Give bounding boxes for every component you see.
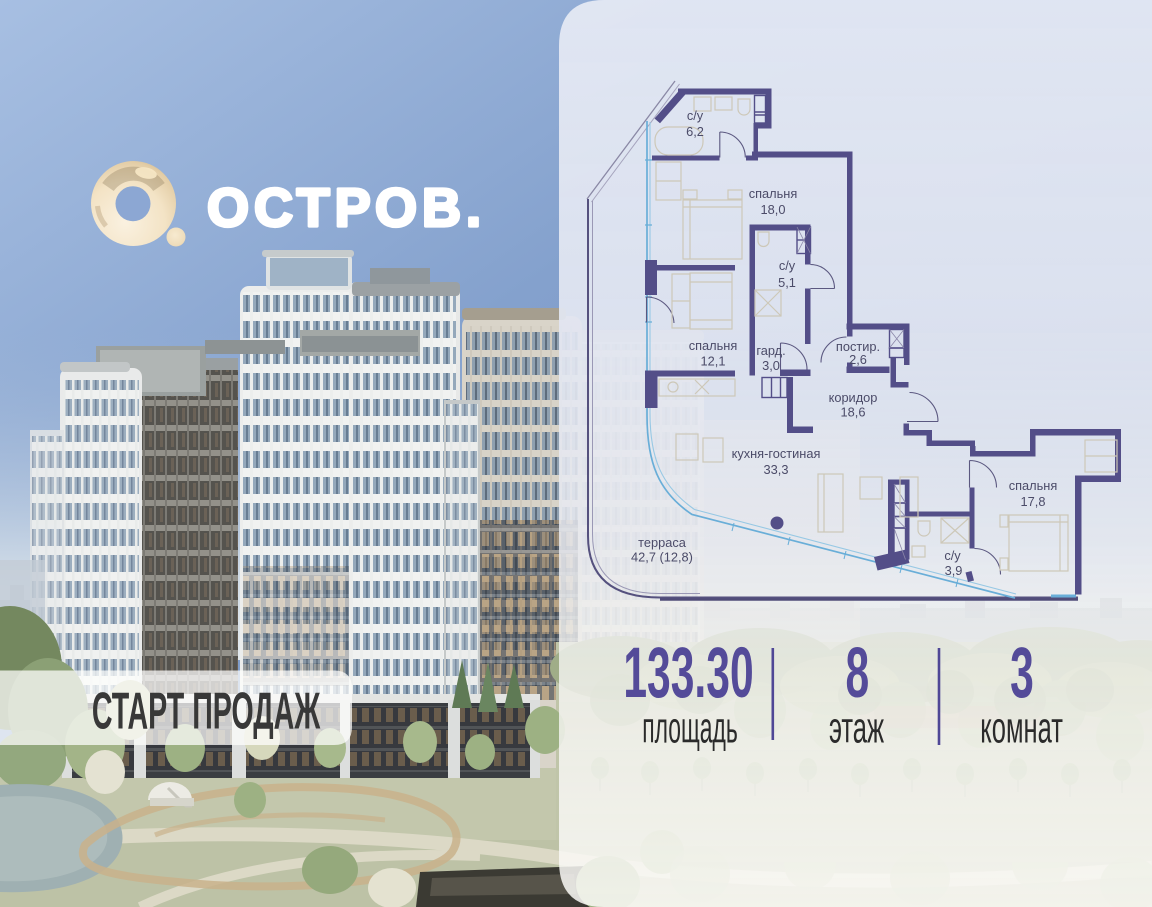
svg-text:42,7 (12,8): 42,7 (12,8)	[631, 550, 693, 565]
svg-text:с/у: с/у	[944, 548, 961, 563]
svg-text:спальня: спальня	[749, 186, 798, 201]
svg-text:18,6: 18,6	[841, 405, 866, 420]
svg-text:гард.: гард.	[756, 343, 785, 358]
svg-text:спальня: спальня	[689, 338, 738, 353]
svg-text:ОСТРОВ.: ОСТРОВ.	[207, 178, 486, 238]
svg-text:СТАРТ ПРОДАЖ: СТАРТ ПРОДАЖ	[92, 681, 321, 739]
svg-text:18,0: 18,0	[761, 202, 786, 217]
svg-text:5,1: 5,1	[778, 275, 796, 290]
svg-text:кухня-гостиная: кухня-гостиная	[732, 446, 821, 461]
svg-text:3: 3	[1010, 634, 1034, 713]
svg-text:33,3: 33,3	[764, 462, 789, 477]
svg-text:3,9: 3,9	[945, 563, 963, 578]
svg-text:6,2: 6,2	[686, 124, 704, 139]
svg-text:комнат: комнат	[980, 702, 1063, 752]
svg-text:133.30: 133.30	[623, 634, 753, 713]
svg-text:спальня: спальня	[1009, 478, 1058, 493]
svg-text:с/у: с/у	[779, 258, 796, 273]
svg-text:2,6: 2,6	[849, 352, 867, 367]
svg-text:площадь: площадь	[642, 704, 737, 753]
svg-text:17,8: 17,8	[1021, 494, 1046, 509]
svg-text:3,0: 3,0	[762, 358, 780, 373]
svg-text:терраса: терраса	[638, 535, 687, 550]
svg-text:с/у: с/у	[687, 108, 704, 123]
svg-text:коридор: коридор	[829, 390, 878, 405]
svg-text:8: 8	[846, 634, 870, 713]
svg-text:12,1: 12,1	[701, 354, 726, 369]
svg-text:этаж: этаж	[829, 702, 884, 752]
